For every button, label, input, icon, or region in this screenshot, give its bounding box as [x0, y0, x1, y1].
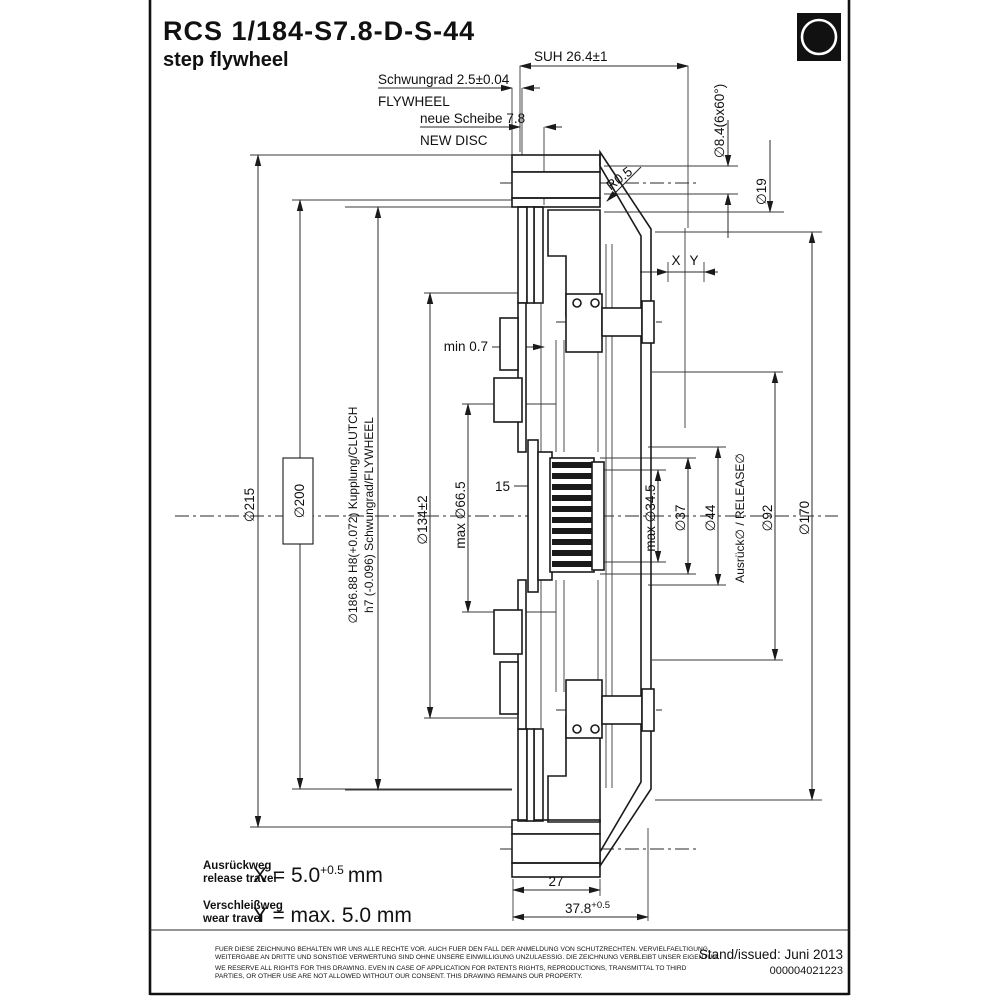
dim-378: 37.8+0.5 — [565, 900, 610, 916]
issued-date: Stand/issued: Juni 2013 — [699, 947, 843, 962]
zf-logo-text: ZF — [806, 28, 832, 49]
dim-27: 27 — [548, 874, 563, 889]
dim-counterbore: ∅19 — [754, 178, 769, 205]
flywheel-rim-top — [512, 155, 600, 207]
dim-y: Y — [689, 253, 698, 268]
zf-logo: ZF — [797, 13, 841, 61]
disclaimer-en-1: WE RESERVE ALL RIGHTS FOR THIS DRAWING. … — [215, 965, 687, 972]
disclaimer-de-1: FUER DIESE ZEICHNUNG BEHALTEN WIR UNS AL… — [215, 946, 710, 953]
technical-drawing-svg: RCS 1/184-S7.8-D-S-44 step flywheel ZF S… — [0, 0, 1000, 1000]
dim-new-disc-en: NEW DISC — [420, 133, 488, 148]
dim-spline-len: 15 — [495, 479, 510, 494]
dim-d92: ∅92 — [760, 505, 775, 532]
dim-bolt-hole: ∅8.4(6x60°) — [712, 84, 727, 158]
dim-d215: ∅215 — [242, 488, 257, 522]
disclaimer-de-2: WEITERGABE AN DRITTE UND SONSTIGE VERWER… — [215, 954, 720, 961]
release-travel-value: X = 5.0+0.5mm — [253, 863, 383, 887]
dim-d186-clutch: ∅186.88 H8(+0.072) Kupplung/CLUTCH — [346, 407, 360, 624]
drawing-number: RCS 1/184-S7.8-D-S-44 — [163, 16, 475, 46]
drawing-sheet: RCS 1/184-S7.8-D-S-44 step flywheel ZF S… — [0, 0, 1000, 1000]
dim-new-disc-de: neue Scheibe 7.8 — [420, 111, 525, 126]
disclaimer-en-2: PARTIES, OR OTHER USE ARE NOT ALLOWED WI… — [215, 973, 583, 980]
dim-d186-flywheel: h7 (-0.096) Schwungrad/FLYWHEEL — [362, 417, 376, 613]
wear-travel-value: Y = max. 5.0 mm — [253, 904, 412, 927]
dim-d200: ∅200 — [292, 484, 307, 518]
dim-d34: max ∅34.5 — [643, 484, 658, 551]
dim-d37: ∅37 — [673, 505, 688, 532]
travel-table: Ausrückweg release travel X = 5.0+0.5mm … — [202, 860, 412, 927]
flywheel-rim-bottom — [512, 820, 600, 877]
hub-spline — [528, 440, 604, 592]
dim-d44: ∅44 — [703, 504, 718, 531]
dim-d66: max ∅66.5 — [453, 481, 468, 548]
drawing-name: step flywheel — [163, 49, 289, 71]
labels: RCS 1/184-S7.8-D-S-44 step flywheel ZF S… — [163, 13, 843, 980]
dim-flywheel-en: FLYWHEEL — [378, 94, 450, 109]
clutch-cross-section — [494, 152, 654, 877]
dim-x: X — [671, 253, 680, 268]
dim-min-gap: min 0.7 — [444, 339, 488, 354]
dim-suh: SUH 26.4±1 — [534, 49, 607, 64]
doc-number: 000004021223 — [770, 965, 843, 977]
dim-flywheel-de: Schwungrad 2.5±0.04 — [378, 72, 510, 87]
dim-release-label: Ausrück∅ / RELEASE∅ — [733, 453, 747, 583]
dim-d134: ∅134±2 — [415, 495, 430, 544]
footer: FUER DIESE ZEICHNUNG BEHALTEN WIR UNS AL… — [215, 946, 843, 980]
dim-d170: ∅170 — [797, 501, 812, 535]
